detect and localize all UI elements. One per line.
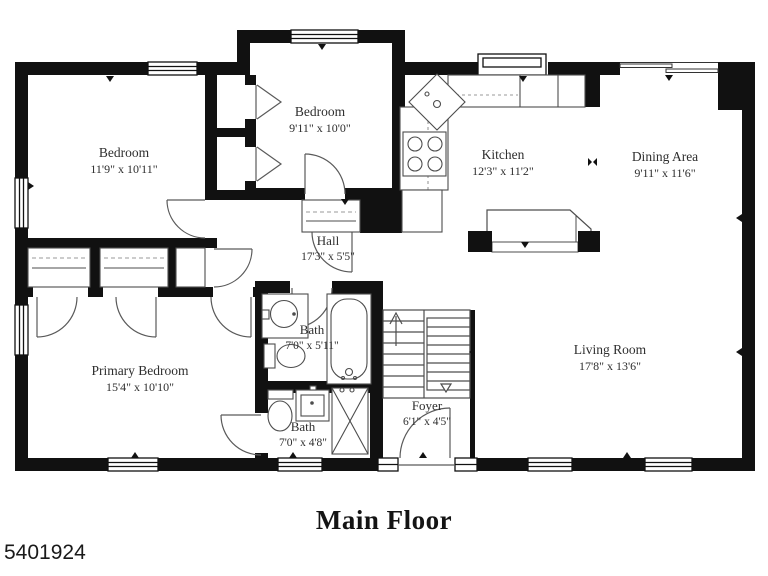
room-name: Foyer	[377, 398, 477, 415]
photo-id: 5401924	[4, 541, 86, 565]
room-label-bedroom-1: Bedroom 11'9" x 10'11"	[64, 144, 184, 177]
sidelight-window	[378, 458, 398, 471]
door-primary-closet-1	[37, 297, 77, 337]
room-name: Kitchen	[443, 146, 563, 164]
room-dimensions: 17'3" x 5'5"	[278, 250, 378, 265]
door-primary-closet-2	[116, 297, 156, 337]
room-label-bath-2: Bath 7'0" x 4'8"	[253, 419, 353, 451]
window	[15, 305, 28, 355]
room-dimensions: 7'0" x 5'11"	[262, 339, 362, 354]
room-label-primary-bedroom: Primary Bedroom 15'4" x 10'10"	[60, 362, 220, 395]
room-dimensions: 17'8" x 13'6"	[550, 359, 670, 375]
room-name: Bath	[253, 419, 353, 436]
door-hall	[214, 249, 252, 287]
floor-plan-drawing	[0, 0, 768, 576]
door-primary-bedroom	[211, 297, 251, 337]
window	[148, 62, 197, 75]
room-label-hall: Hall 17'3" x 5'5"	[278, 233, 378, 265]
door-bedroom-2	[305, 154, 345, 194]
room-dimensions: 7'0" x 4'8"	[253, 436, 353, 451]
room-label-living-room: Living Room 17'8" x 13'6"	[550, 341, 670, 374]
window	[528, 458, 572, 471]
wall-tick-markers	[28, 44, 742, 458]
room-label-bath-1: Bath 7'0" x 5'11"	[262, 322, 362, 354]
room-dimensions: 15'4" x 10'10"	[60, 380, 220, 396]
window	[291, 30, 358, 43]
stairs-down-icon	[441, 384, 451, 392]
room-name: Hall	[278, 233, 378, 250]
room-dimensions: 6'1" x 4'5"	[377, 415, 477, 430]
floorplan-page: Bedroom 11'9" x 10'11" Bedroom 9'11" x 1…	[0, 0, 768, 576]
kitchen-counter	[448, 75, 585, 107]
room-dimensions: 11'9" x 10'11"	[64, 162, 184, 178]
bay-window	[478, 54, 546, 75]
window	[645, 458, 692, 471]
window	[108, 458, 158, 471]
sidelight-window	[455, 458, 477, 471]
room-label-foyer: Foyer 6'1" x 4'5"	[377, 398, 477, 430]
staircase	[383, 310, 470, 398]
room-name: Dining Area	[603, 148, 727, 166]
door-bedroom-1	[167, 200, 205, 238]
room-dimensions: 12'3" x 11'2"	[443, 164, 563, 180]
closet	[176, 248, 205, 287]
sliding-door	[620, 63, 718, 73]
refrigerator-icon	[402, 190, 442, 232]
room-name: Primary Bedroom	[60, 362, 220, 380]
room-label-dining-area: Dining Area 9'11" x 11'6"	[603, 148, 727, 181]
room-name: Bedroom	[64, 144, 184, 162]
closet	[28, 248, 90, 287]
floor-title: Main Floor	[0, 505, 768, 536]
room-dimensions: 9'11" x 10'0"	[260, 121, 380, 137]
room-name: Bath	[262, 322, 362, 339]
room-label-kitchen: Kitchen 12'3" x 11'2"	[443, 146, 563, 179]
window	[15, 178, 28, 228]
room-name: Living Room	[550, 341, 670, 359]
window	[278, 458, 322, 471]
sink-icon	[296, 386, 329, 421]
room-label-bedroom-2: Bedroom 9'11" x 10'0"	[260, 103, 380, 136]
room-name: Bedroom	[260, 103, 380, 121]
chimney-chase	[360, 198, 402, 233]
closet	[100, 248, 168, 287]
stairs-up-arrow-icon	[390, 313, 402, 346]
room-dimensions: 9'11" x 11'6"	[603, 166, 727, 182]
stove-icon	[403, 132, 446, 176]
fireplace	[468, 210, 600, 252]
linen-closet	[302, 200, 360, 232]
